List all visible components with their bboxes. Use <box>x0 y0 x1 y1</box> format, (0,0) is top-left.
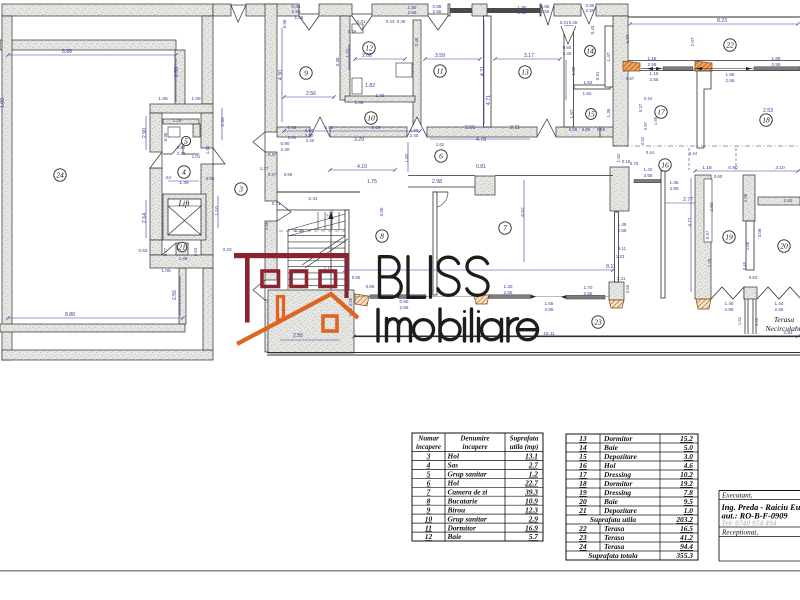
svg-text:2.41: 2.41 <box>308 196 318 202</box>
svg-text:Denumire: Denumire <box>459 435 489 443</box>
svg-text:10: 10 <box>367 114 375 123</box>
svg-text:0.84: 0.84 <box>288 125 297 130</box>
svg-text:0.80: 0.80 <box>177 145 186 150</box>
svg-text:Dormitor: Dormitor <box>603 479 632 488</box>
svg-text:Terasa: Terasa <box>604 542 625 551</box>
svg-text:1.31: 1.31 <box>617 276 626 281</box>
svg-text:0.91: 0.91 <box>595 71 600 80</box>
svg-text:3.38: 3.38 <box>335 57 340 66</box>
svg-text:15.2: 15.2 <box>680 434 693 443</box>
svg-text:18: 18 <box>762 116 770 125</box>
svg-text:0.43: 0.43 <box>386 19 395 24</box>
svg-text:3.59: 3.59 <box>435 53 445 59</box>
svg-text:15: 15 <box>579 452 587 461</box>
svg-text:7.8: 7.8 <box>684 488 694 497</box>
svg-text:Tel: 0740 974 494: Tel: 0740 974 494 <box>722 519 777 528</box>
svg-text:5: 5 <box>427 470 431 479</box>
svg-text:4.78: 4.78 <box>476 137 486 143</box>
svg-text:24: 24 <box>578 542 587 551</box>
svg-text:1.45: 1.45 <box>725 301 734 306</box>
svg-text:13: 13 <box>521 68 529 77</box>
svg-text:10.9: 10.9 <box>525 496 538 505</box>
svg-text:2.64: 2.64 <box>142 213 148 223</box>
svg-text:Grup sanitar: Grup sanitar <box>448 514 487 523</box>
svg-text:Dressing: Dressing <box>603 470 631 479</box>
svg-text:0.77: 0.77 <box>163 247 168 256</box>
svg-text:1.67: 1.67 <box>569 109 574 118</box>
svg-text:1.35: 1.35 <box>606 108 611 117</box>
svg-text:41.2: 41.2 <box>679 533 693 542</box>
svg-text:Dormitor: Dormitor <box>603 434 632 443</box>
svg-text:7: 7 <box>503 224 507 233</box>
svg-text:2.55: 2.55 <box>400 305 409 310</box>
svg-text:2.55: 2.55 <box>293 333 303 339</box>
svg-text:0.82: 0.82 <box>325 125 334 130</box>
svg-text:0.65: 0.65 <box>352 275 361 280</box>
svg-text:Suprafata utila: Suprafata utila <box>590 515 637 524</box>
svg-text:0.85: 0.85 <box>582 127 591 132</box>
svg-text:Baie: Baie <box>447 532 463 541</box>
svg-text:3.10: 3.10 <box>775 165 785 171</box>
svg-text:1.47: 1.47 <box>606 52 611 61</box>
svg-text:3: 3 <box>238 185 243 194</box>
svg-text:0.45: 0.45 <box>742 261 747 270</box>
svg-text:4.30: 4.30 <box>278 70 284 80</box>
svg-text:3: 3 <box>426 452 431 461</box>
svg-text:1.45: 1.45 <box>618 222 627 227</box>
svg-text:1.20: 1.20 <box>504 284 513 289</box>
svg-text:Numar: Numar <box>417 435 439 443</box>
svg-text:16.5: 16.5 <box>680 524 693 533</box>
svg-text:0.15: 0.15 <box>622 159 631 164</box>
svg-text:11: 11 <box>425 523 432 532</box>
svg-text:Executant,: Executant, <box>721 492 753 500</box>
svg-text:3.22: 3.22 <box>222 247 232 253</box>
svg-text:0.39: 0.39 <box>397 19 406 24</box>
svg-text:1.06: 1.06 <box>161 268 171 274</box>
svg-text:3.11: 3.11 <box>618 246 627 251</box>
svg-text:2.53: 2.53 <box>784 198 793 203</box>
svg-text:14: 14 <box>579 443 587 452</box>
svg-text:1.18: 1.18 <box>648 56 657 61</box>
svg-text:17: 17 <box>657 108 665 117</box>
svg-text:16: 16 <box>579 461 587 470</box>
svg-text:2.40: 2.40 <box>281 147 290 152</box>
svg-text:2.98: 2.98 <box>432 179 442 185</box>
svg-text:2.50: 2.50 <box>220 117 226 127</box>
svg-text:0.47: 0.47 <box>268 152 277 157</box>
svg-text:2.56: 2.56 <box>306 91 316 97</box>
svg-text:incapere: incapere <box>463 443 488 451</box>
svg-text:1.42: 1.42 <box>644 167 653 172</box>
svg-text:21: 21 <box>178 243 186 252</box>
svg-text:0.97: 0.97 <box>705 230 710 239</box>
svg-text:1.10: 1.10 <box>214 206 220 216</box>
svg-text:1.61: 1.61 <box>737 316 742 325</box>
svg-text:2.55: 2.55 <box>586 8 595 13</box>
svg-text:0.63: 0.63 <box>193 247 198 256</box>
svg-text:17: 17 <box>579 470 587 479</box>
svg-text:1.65: 1.65 <box>726 72 735 77</box>
svg-text:2.55: 2.55 <box>292 9 301 14</box>
svg-text:10.2: 10.2 <box>680 470 693 479</box>
svg-text:0.31: 0.31 <box>357 19 366 24</box>
svg-text:18: 18 <box>579 479 587 488</box>
svg-text:355.3: 355.3 <box>675 551 693 560</box>
svg-text:19: 19 <box>579 488 587 497</box>
svg-text:utila (mp): utila (mp) <box>510 443 539 451</box>
svg-text:Dressing: Dressing <box>603 488 631 497</box>
svg-text:2.77: 2.77 <box>683 197 693 203</box>
svg-text:Suprafata totala: Suprafata totala <box>588 551 638 560</box>
svg-text:12: 12 <box>425 532 433 541</box>
svg-text:11: 11 <box>437 67 444 76</box>
svg-text:0.48: 0.48 <box>414 37 419 46</box>
svg-text:Hol: Hol <box>447 452 460 461</box>
svg-text:Sas: Sas <box>448 461 459 470</box>
svg-text:Baie: Baie <box>603 497 619 506</box>
svg-text:Depozitare: Depozitare <box>603 506 638 515</box>
svg-text:23: 23 <box>578 533 587 542</box>
svg-text:2.55: 2.55 <box>670 186 679 191</box>
svg-text:0.49: 0.49 <box>348 29 357 34</box>
svg-text:16.9: 16.9 <box>525 523 538 532</box>
svg-text:0.59: 0.59 <box>284 172 293 177</box>
svg-text:0.97: 0.97 <box>643 121 648 130</box>
svg-text:1.18: 1.18 <box>702 165 712 171</box>
svg-text:2.55: 2.55 <box>408 10 417 15</box>
svg-text:2.55: 2.55 <box>726 78 735 83</box>
svg-text:1.34: 1.34 <box>625 34 630 43</box>
svg-text:5.0: 5.0 <box>684 443 694 452</box>
svg-text:3.00: 3.00 <box>379 207 384 216</box>
svg-text:2.40: 2.40 <box>563 51 572 56</box>
svg-text:2.40: 2.40 <box>177 151 186 156</box>
svg-text:2.55: 2.55 <box>504 290 513 295</box>
svg-text:0.47: 0.47 <box>268 172 277 177</box>
svg-text:2.56: 2.56 <box>465 125 475 131</box>
svg-text:2.55: 2.55 <box>725 307 734 312</box>
svg-text:incapere: incapere <box>416 443 441 451</box>
svg-text:Receptionat,: Receptionat, <box>721 529 758 537</box>
svg-text:Camera de zi: Camera de zi <box>448 487 489 496</box>
svg-text:Suprafata: Suprafata <box>510 435 539 443</box>
svg-text:1.56: 1.56 <box>295 15 304 20</box>
svg-text:0.81: 0.81 <box>476 164 486 170</box>
svg-text:2.55: 2.55 <box>775 307 784 312</box>
svg-text:19: 19 <box>725 233 733 242</box>
svg-text:0.90: 0.90 <box>400 299 409 304</box>
svg-text:0.90: 0.90 <box>728 165 738 171</box>
svg-text:1.96: 1.96 <box>743 193 748 202</box>
svg-text:Dormitor: Dormitor <box>447 523 476 532</box>
svg-text:0.66: 0.66 <box>625 284 630 293</box>
svg-text:0.53: 0.53 <box>749 275 758 280</box>
svg-text:Bucatarie: Bucatarie <box>447 496 479 505</box>
svg-text:3.29: 3.29 <box>354 137 364 143</box>
svg-text:0.44: 0.44 <box>644 96 653 101</box>
svg-text:0.80: 0.80 <box>563 45 572 50</box>
svg-text:2.55: 2.55 <box>264 221 269 230</box>
svg-text:4.6: 4.6 <box>683 461 694 470</box>
svg-text:6: 6 <box>427 479 431 488</box>
svg-text:2.07: 2.07 <box>690 37 695 46</box>
svg-text:1.08: 1.08 <box>191 96 201 102</box>
svg-text:1.28: 1.28 <box>173 118 182 123</box>
svg-text:10: 10 <box>425 514 433 523</box>
svg-text:0.31: 0.31 <box>560 20 569 25</box>
svg-text:2.06: 2.06 <box>362 53 372 59</box>
svg-text:1.15: 1.15 <box>650 71 659 76</box>
svg-text:1.82: 1.82 <box>365 83 375 89</box>
svg-text:2.40: 2.40 <box>306 138 315 143</box>
svg-text:19.2: 19.2 <box>680 479 693 488</box>
svg-text:8: 8 <box>380 232 384 241</box>
svg-text:1.37: 1.37 <box>260 166 269 171</box>
svg-text:2.09: 2.09 <box>372 125 381 130</box>
svg-text:1.60: 1.60 <box>745 241 750 250</box>
svg-text:1.2: 1.2 <box>529 470 539 479</box>
svg-text:2.55: 2.55 <box>518 10 527 15</box>
svg-text:1.55: 1.55 <box>545 301 554 306</box>
svg-text:1.25: 1.25 <box>707 258 712 267</box>
svg-text:2.9: 2.9 <box>528 514 539 523</box>
svg-text:0.90: 0.90 <box>281 141 290 146</box>
svg-text:16: 16 <box>661 161 669 170</box>
svg-text:2.55: 2.55 <box>618 228 627 233</box>
svg-text:0.43: 0.43 <box>590 25 595 34</box>
svg-text:2.55: 2.55 <box>650 77 659 82</box>
svg-text:6.52: 6.52 <box>520 207 526 217</box>
svg-text:2.55: 2.55 <box>644 173 653 178</box>
svg-text:9.5: 9.5 <box>684 497 694 506</box>
svg-text:4: 4 <box>182 168 186 177</box>
svg-text:16.11: 16.11 <box>543 331 555 337</box>
svg-text:22: 22 <box>578 524 587 533</box>
svg-text:4.10: 4.10 <box>357 164 367 170</box>
svg-text:21: 21 <box>578 506 586 515</box>
svg-text:Birou: Birou <box>447 505 466 514</box>
svg-text:1.41: 1.41 <box>754 317 759 326</box>
svg-text:2.40: 2.40 <box>410 133 419 138</box>
svg-text:13: 13 <box>579 434 587 443</box>
svg-text:1.75: 1.75 <box>367 179 377 185</box>
svg-text:0.90: 0.90 <box>163 132 168 141</box>
svg-text:22: 22 <box>726 41 734 50</box>
svg-text:203.2: 203.2 <box>675 515 693 524</box>
svg-text:2.55: 2.55 <box>584 291 593 296</box>
svg-text:1.62: 1.62 <box>584 80 593 85</box>
svg-text:1.09: 1.09 <box>376 93 385 98</box>
svg-text:Terasa: Terasa <box>604 524 625 533</box>
svg-text:Grup sanitar: Grup sanitar <box>448 470 487 479</box>
svg-text:Terasa: Terasa <box>774 315 794 324</box>
svg-text:1.85: 1.85 <box>772 56 781 61</box>
svg-text:15: 15 <box>587 110 595 119</box>
svg-text:0.71: 0.71 <box>272 201 281 206</box>
svg-text:1.70: 1.70 <box>584 285 593 290</box>
svg-text:4.71: 4.71 <box>687 217 693 227</box>
svg-text:0.67: 0.67 <box>626 76 635 81</box>
svg-text:5.7: 5.7 <box>529 532 539 541</box>
svg-text:3.17: 3.17 <box>524 53 534 59</box>
svg-text:.54: .54 <box>165 175 172 180</box>
svg-text:39.3: 39.3 <box>524 487 538 496</box>
svg-text:2.7: 2.7 <box>528 461 539 470</box>
svg-text:14: 14 <box>586 47 594 56</box>
svg-text:7: 7 <box>427 487 431 496</box>
svg-text:0.44: 0.44 <box>689 151 698 156</box>
svg-text:1.30: 1.30 <box>295 228 304 233</box>
svg-text:9: 9 <box>304 69 308 78</box>
svg-text:20: 20 <box>780 242 788 251</box>
svg-text:1.52: 1.52 <box>583 91 592 96</box>
svg-text:4.21: 4.21 <box>480 66 486 76</box>
svg-text:13.1: 13.1 <box>525 452 538 461</box>
svg-text:1.44: 1.44 <box>775 301 784 306</box>
svg-text:3.0: 3.0 <box>683 452 694 461</box>
svg-text:0.44: 0.44 <box>646 150 655 155</box>
svg-text:2.84: 2.84 <box>783 330 793 336</box>
svg-text:1.08: 1.08 <box>0 98 6 108</box>
svg-text:6: 6 <box>439 152 443 161</box>
svg-text:0.86: 0.86 <box>366 284 375 289</box>
svg-text:8.23: 8.23 <box>717 18 727 24</box>
svg-text:Necirculabila: Necirculabila <box>765 324 800 333</box>
svg-text:12.3: 12.3 <box>525 505 538 514</box>
svg-text:0.98: 0.98 <box>569 127 578 132</box>
svg-text:1.01: 1.01 <box>192 154 201 159</box>
svg-text:Terasa: Terasa <box>604 533 625 542</box>
svg-text:1.33: 1.33 <box>616 254 625 259</box>
svg-text:2.55: 2.55 <box>433 9 442 14</box>
svg-text:2.11: 2.11 <box>510 125 520 131</box>
svg-text:1.95: 1.95 <box>653 116 658 125</box>
svg-text:8.88: 8.88 <box>65 312 75 318</box>
svg-text:8: 8 <box>427 496 431 505</box>
svg-text:2.55: 2.55 <box>545 307 554 312</box>
svg-text:9: 9 <box>427 505 431 514</box>
svg-text:23: 23 <box>594 318 602 327</box>
svg-text:Baie: Baie <box>603 443 619 452</box>
svg-text:2.56: 2.56 <box>174 67 180 77</box>
svg-text:2.55: 2.55 <box>648 62 657 67</box>
svg-text:2.60: 2.60 <box>709 202 714 211</box>
svg-text:22.7: 22.7 <box>524 479 538 488</box>
svg-text:Depozitare: Depozitare <box>603 452 638 461</box>
svg-text:0.60: 0.60 <box>714 174 723 179</box>
svg-text:4: 4 <box>426 461 431 470</box>
svg-text:1.0: 1.0 <box>684 506 694 515</box>
svg-text:2.55: 2.55 <box>541 9 550 14</box>
svg-text:4.71: 4.71 <box>486 95 492 105</box>
svg-text:2.90: 2.90 <box>142 128 148 138</box>
svg-text:1.42: 1.42 <box>205 145 210 154</box>
svg-text:1.82: 1.82 <box>571 66 576 75</box>
svg-text:0.37: 0.37 <box>638 103 643 112</box>
svg-text:1.62: 1.62 <box>436 142 445 147</box>
svg-text:0.45: 0.45 <box>569 20 578 25</box>
svg-text:2.55: 2.55 <box>772 62 781 67</box>
svg-text:0.61: 0.61 <box>640 136 645 145</box>
svg-text:0.68: 0.68 <box>597 127 606 132</box>
svg-text:0.35: 0.35 <box>348 297 353 306</box>
svg-text:Lift: Lift <box>177 199 190 208</box>
svg-text:Hol: Hol <box>447 479 460 488</box>
svg-text:0.96: 0.96 <box>282 19 287 28</box>
svg-text:3.06: 3.06 <box>757 228 762 237</box>
svg-text:0.95: 0.95 <box>206 176 215 181</box>
svg-text:8.88: 8.88 <box>62 49 72 55</box>
svg-text:2.53: 2.53 <box>763 108 773 114</box>
svg-text:1.49: 1.49 <box>179 256 188 261</box>
svg-text:1.62: 1.62 <box>616 153 621 162</box>
svg-text:20: 20 <box>578 497 587 506</box>
svg-text:1.06: 1.06 <box>158 96 168 102</box>
svg-text:2.56: 2.56 <box>172 290 178 300</box>
svg-text:0.84: 0.84 <box>288 135 297 140</box>
svg-text:24: 24 <box>56 171 64 180</box>
svg-text:0.63: 0.63 <box>139 248 148 253</box>
svg-text:0.75: 0.75 <box>630 161 639 166</box>
svg-text:94.4: 94.4 <box>680 542 693 551</box>
svg-text:1.06: 1.06 <box>355 100 364 105</box>
svg-text:12: 12 <box>365 44 373 53</box>
svg-text:Hol: Hol <box>603 461 616 470</box>
svg-text:1.35: 1.35 <box>670 180 679 185</box>
